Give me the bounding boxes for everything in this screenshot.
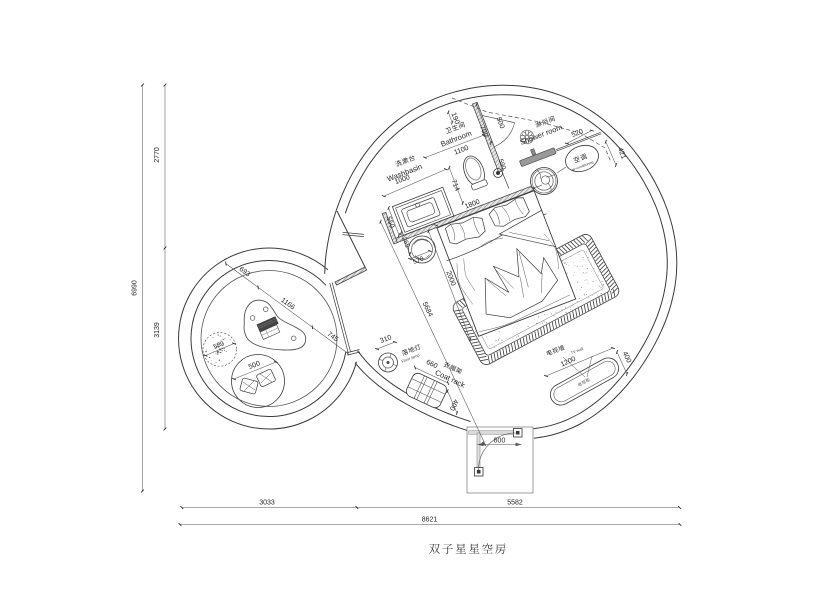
svg-text:5582: 5582 [507, 500, 523, 507]
svg-text:3139: 3139 [154, 322, 161, 338]
svg-text:6990: 6990 [132, 280, 139, 296]
svg-text:3033: 3033 [259, 500, 275, 507]
svg-text:800: 800 [494, 438, 506, 445]
svg-text:8621: 8621 [422, 517, 438, 524]
svg-text:2770: 2770 [154, 147, 161, 163]
